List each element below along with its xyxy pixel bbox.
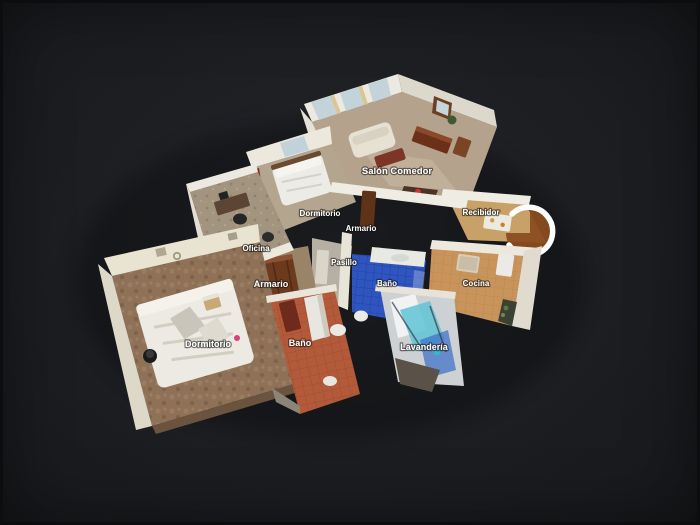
hall-cabinet xyxy=(315,250,329,285)
room-label-recibidor[interactable]: Recibidor xyxy=(463,208,500,217)
bidet xyxy=(323,376,337,386)
toilet xyxy=(354,311,368,322)
office-chair xyxy=(262,232,274,242)
room-label-pasillo[interactable]: Pasillo xyxy=(331,258,357,267)
office-chair xyxy=(233,214,247,225)
trash-bin-rim xyxy=(146,350,154,358)
room-label-cocina[interactable]: Cocina xyxy=(463,279,490,288)
room-label-oficina[interactable]: Oficina xyxy=(242,244,270,253)
plant xyxy=(448,116,457,125)
room-label-salon-comedor[interactable]: Salón Comedor xyxy=(362,166,433,177)
room-label-dormitorio-grande[interactable]: Dormitorio xyxy=(185,339,232,349)
room-label-dormitorio-medio[interactable]: Dormitorio xyxy=(300,209,341,218)
room-label-bano-terracota[interactable]: Baño xyxy=(289,338,312,348)
room-label-armario-centro[interactable]: Armario xyxy=(346,224,377,233)
sink-basin xyxy=(391,254,409,262)
wood-cabinet xyxy=(360,191,376,228)
plant xyxy=(504,306,509,311)
pink-object xyxy=(234,335,240,341)
toilet xyxy=(330,324,346,336)
viewer-canvas[interactable]: Salón Comedor Dormitorio Armario Recibid… xyxy=(0,0,700,525)
kitchen-table xyxy=(456,254,480,274)
fridge xyxy=(496,253,515,277)
dollhouse-scene[interactable]: Salón Comedor Dormitorio Armario Recibid… xyxy=(0,0,700,525)
plant xyxy=(501,313,505,317)
room-label-armario-izq[interactable]: Armario xyxy=(254,279,289,289)
room-label-bano-azul[interactable]: Baño xyxy=(377,279,397,288)
room-label-lavanderia[interactable]: Lavandería xyxy=(400,342,449,352)
